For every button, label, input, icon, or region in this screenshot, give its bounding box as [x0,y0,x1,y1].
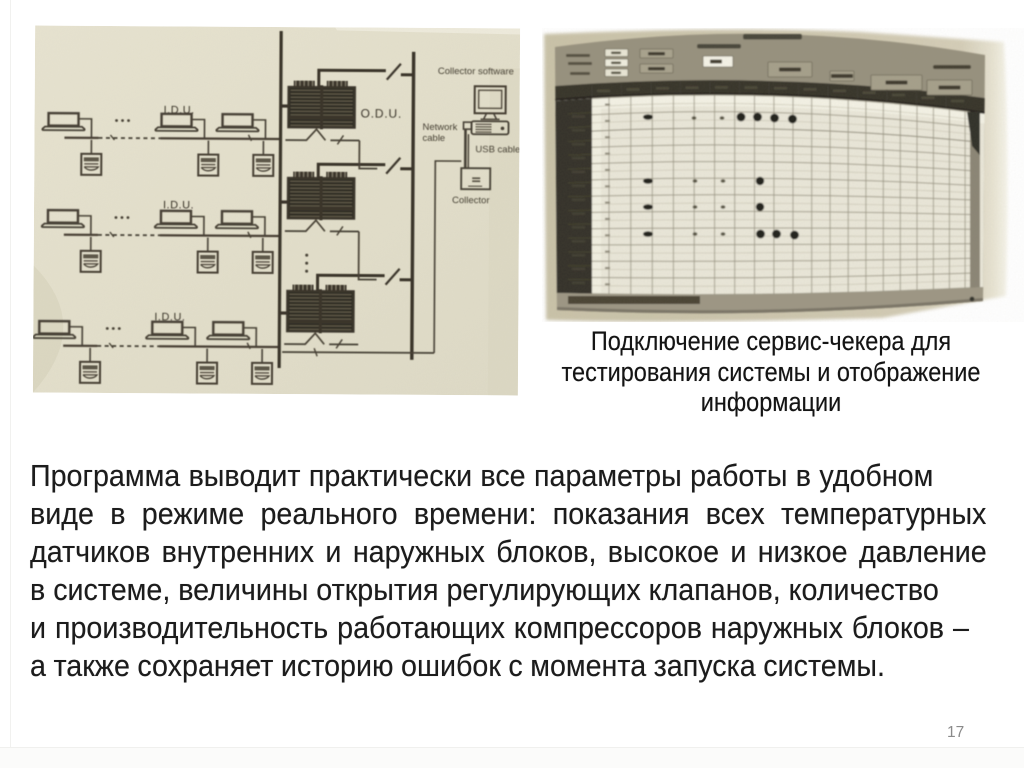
svg-text:O.D.U.: O.D.U. [361,107,403,121]
svg-text:Network: Network [422,122,457,133]
svg-text:Collector software: Collector software [438,66,514,77]
svg-text:cable: cable [422,133,445,144]
svg-text:Collector: Collector [452,195,490,206]
svg-text:USB cable: USB cable [475,144,520,155]
